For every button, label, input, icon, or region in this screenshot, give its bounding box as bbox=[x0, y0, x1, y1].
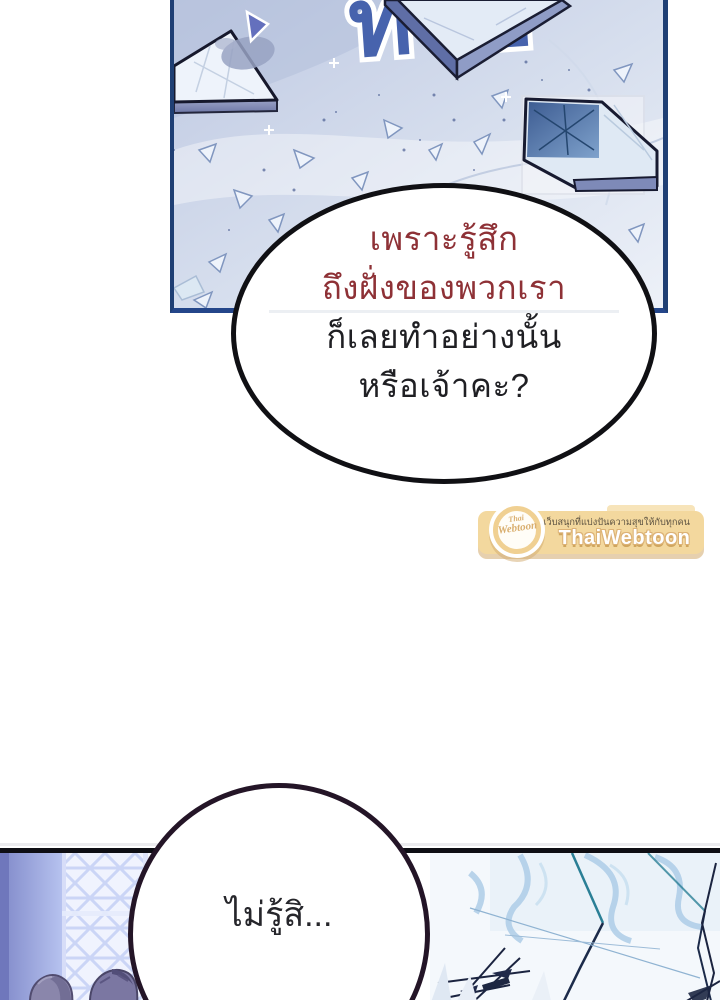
panel-edge-showthrough bbox=[269, 310, 618, 313]
watermark-brand: ThaiWebtoon bbox=[547, 527, 702, 550]
speech-line: ไม่รู้สิ... bbox=[133, 890, 425, 940]
thaiwebtoon-watermark: เว็บสนุกที่แบ่งปันความสุขให้กับทุกคน Tha… bbox=[477, 500, 709, 568]
speech-line: ก็เลยทำอย่างนั้น bbox=[236, 312, 652, 361]
speech-bubble-bottom: ไม่รู้สิ... bbox=[128, 783, 430, 1000]
watermark-badge: Thai Webtoon bbox=[489, 502, 545, 558]
speech-line: เพราะรู้สึก bbox=[236, 214, 652, 263]
speech-line: หรือเจ้าคะ? bbox=[236, 361, 652, 410]
speech-line: ถึงฝั่งของพวกเรา bbox=[236, 263, 652, 312]
webtoon-page: ทรอ bbox=[0, 0, 720, 1000]
speech-bubble-top: เพราะรู้สึก ถึงฝั่งของพวกเรา ก็เลยทำอย่า… bbox=[231, 183, 657, 484]
